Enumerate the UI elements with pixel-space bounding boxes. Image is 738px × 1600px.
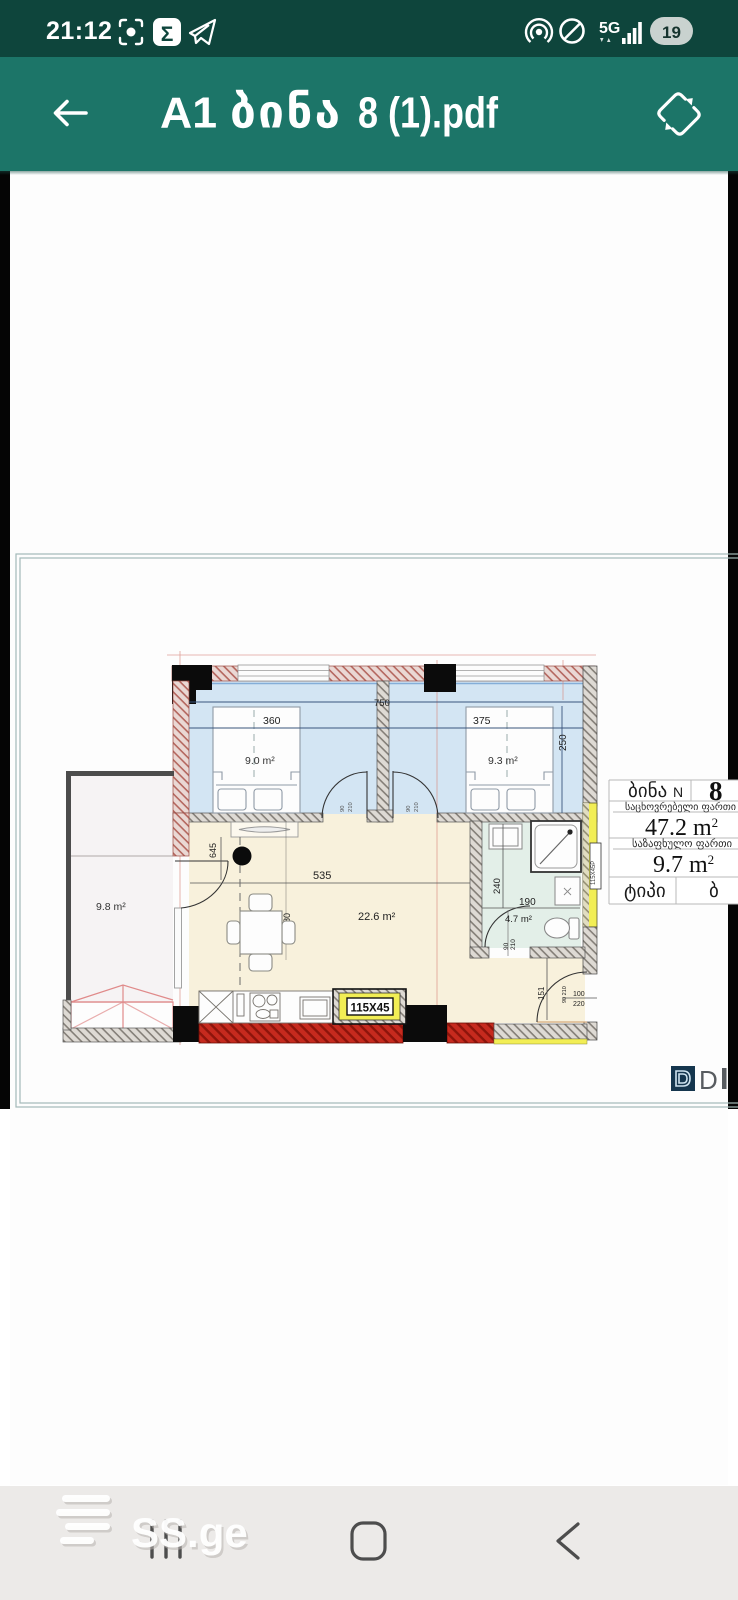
- svg-text:SS.ge: SS.ge: [131, 1509, 248, 1556]
- svg-text:22.6 m²: 22.6 m²: [358, 911, 396, 923]
- svg-text:220: 220: [573, 1001, 585, 1008]
- svg-text:750: 750: [374, 698, 390, 709]
- svg-text:Σ: Σ: [161, 23, 174, 46]
- svg-text:4.7 m²: 4.7 m²: [505, 914, 532, 925]
- svg-text:151: 151: [537, 986, 546, 1000]
- svg-text:190: 190: [519, 897, 536, 908]
- svg-text:210: 210: [510, 939, 517, 950]
- svg-text:90: 90: [406, 806, 412, 812]
- svg-text:360: 360: [263, 715, 281, 727]
- svg-text:19: 19: [662, 23, 681, 42]
- svg-text:9.0 m²: 9.0 m²: [245, 755, 275, 767]
- svg-text:375: 375: [473, 715, 491, 727]
- svg-text:645: 645: [208, 843, 218, 858]
- svg-text:A1: A1: [160, 89, 217, 138]
- svg-text:8: 8: [709, 776, 723, 806]
- svg-text:9.7 m2: 9.7 m2: [653, 852, 714, 878]
- svg-text:210: 210: [414, 802, 420, 812]
- svg-text:90: 90: [340, 806, 346, 812]
- svg-text:N: N: [673, 784, 683, 800]
- svg-text:240: 240: [492, 878, 503, 894]
- svg-text:9.8 m²: 9.8 m²: [96, 901, 126, 913]
- svg-text:115X45: 115X45: [350, 1003, 390, 1015]
- svg-text:5G: 5G: [599, 20, 620, 37]
- svg-text:210: 210: [348, 802, 354, 812]
- svg-text:9.3 m²: 9.3 m²: [488, 755, 518, 767]
- svg-text:535: 535: [313, 870, 331, 882]
- svg-text:8 (1).pdf: 8 (1).pdf: [358, 89, 498, 138]
- svg-text:250: 250: [558, 734, 569, 751]
- svg-text:D: D: [699, 1065, 718, 1095]
- svg-text:90: 90: [503, 942, 510, 950]
- svg-text:115X45P: 115X45P: [591, 861, 597, 885]
- svg-text:47.2 m2: 47.2 m2: [645, 815, 718, 841]
- svg-text:90 210: 90 210: [562, 986, 568, 1003]
- svg-text:100: 100: [573, 991, 585, 998]
